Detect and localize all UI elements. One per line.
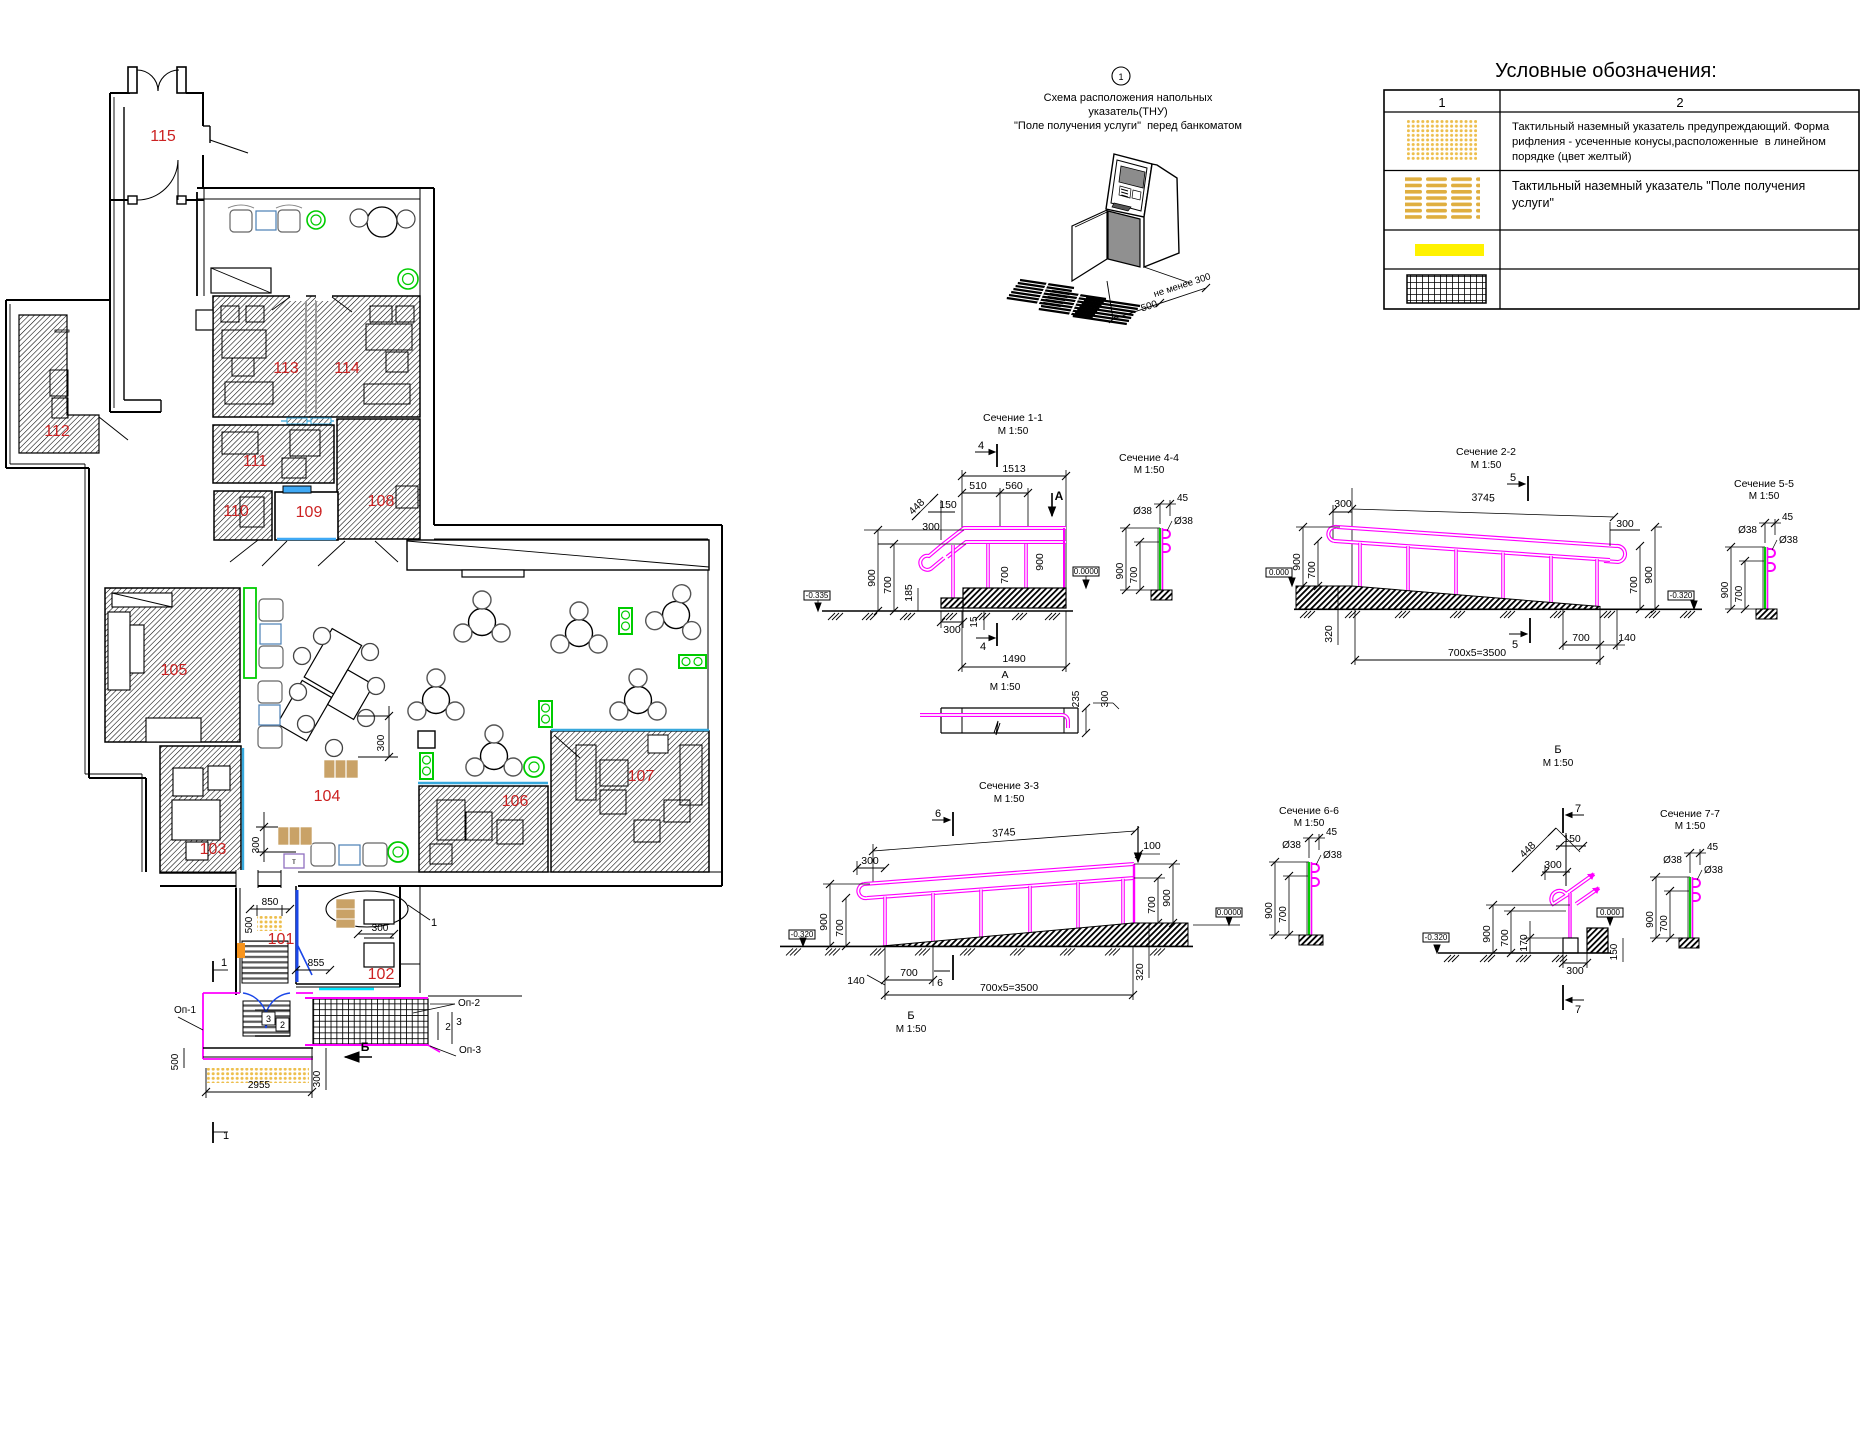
svg-text:Оп-2: Оп-2 <box>458 998 481 1009</box>
svg-text:1490: 1490 <box>1002 653 1026 665</box>
svg-text:300: 300 <box>376 734 387 751</box>
svg-text:700: 700 <box>1659 915 1670 932</box>
svg-text:Ø38: Ø38 <box>1663 855 1682 866</box>
svg-text:Схема расположения напольных: Схема расположения напольных <box>1044 92 1213 104</box>
svg-text:900: 900 <box>1720 581 1731 598</box>
svg-text:560: 560 <box>1005 480 1023 492</box>
svg-text:Сечение 5-5: Сечение 5-5 <box>1734 478 1794 490</box>
svg-text:М 1:50: М 1:50 <box>998 426 1029 437</box>
svg-text:320: 320 <box>1323 625 1335 643</box>
svg-text:2955: 2955 <box>248 1080 271 1091</box>
svg-text:3745: 3745 <box>992 826 1016 840</box>
svg-text:102: 102 <box>368 966 395 983</box>
svg-text:300: 300 <box>922 521 940 533</box>
svg-text:0.000: 0.000 <box>1269 568 1290 577</box>
svg-text:6: 6 <box>937 977 943 989</box>
svg-text:45: 45 <box>1707 842 1719 853</box>
svg-text:М 1:50: М 1:50 <box>896 1024 927 1035</box>
svg-text:900: 900 <box>1645 911 1656 928</box>
svg-text:Сечение 6-6: Сечение 6-6 <box>1279 805 1339 817</box>
svg-text:300: 300 <box>372 923 389 934</box>
svg-text:500: 500 <box>244 916 255 933</box>
svg-text:900: 900 <box>866 569 878 587</box>
svg-text:700: 700 <box>1129 566 1140 583</box>
svg-text:Ø38: Ø38 <box>1282 840 1301 851</box>
svg-text:Сечение 2-2: Сечение 2-2 <box>1456 446 1516 458</box>
svg-text:3: 3 <box>266 1014 271 1024</box>
svg-text:300: 300 <box>1100 690 1111 707</box>
svg-text:М 1:50: М 1:50 <box>1675 821 1706 832</box>
svg-text:320: 320 <box>1134 963 1146 981</box>
svg-text:235: 235 <box>1071 690 1082 707</box>
svg-text:900: 900 <box>1264 902 1275 919</box>
svg-text:300: 300 <box>1616 518 1634 530</box>
svg-text:101: 101 <box>268 931 295 948</box>
svg-text:510: 510 <box>969 480 987 492</box>
svg-text:М 1:50: М 1:50 <box>1294 818 1325 829</box>
svg-text:111: 111 <box>243 453 267 470</box>
svg-text:103: 103 <box>200 841 227 858</box>
svg-text:Ø38: Ø38 <box>1704 865 1723 876</box>
svg-text:М 1:50: М 1:50 <box>990 682 1021 693</box>
svg-text:Б: Б <box>1554 744 1561 756</box>
svg-text:107: 107 <box>628 768 655 785</box>
svg-text:Ø38: Ø38 <box>1133 506 1152 517</box>
svg-text:6: 6 <box>935 808 941 820</box>
svg-text:Оп-1: Оп-1 <box>174 1005 197 1016</box>
svg-text:140: 140 <box>847 975 865 987</box>
svg-text:700: 700 <box>1572 632 1590 644</box>
svg-text:3745: 3745 <box>1471 492 1495 505</box>
svg-text:Сечение 3-3: Сечение 3-3 <box>979 780 1039 792</box>
svg-text:-0.335: -0.335 <box>806 591 829 600</box>
svg-text:114: 114 <box>334 360 360 377</box>
svg-text:А: А <box>1055 489 1064 503</box>
svg-text:100: 100 <box>1143 840 1161 852</box>
svg-text:855: 855 <box>308 958 325 969</box>
svg-text:700: 700 <box>1146 896 1158 914</box>
svg-text:900: 900 <box>1643 566 1655 584</box>
svg-text:700: 700 <box>1278 906 1289 923</box>
svg-text:108: 108 <box>368 493 395 510</box>
svg-text:Сечение 7-7: Сечение 7-7 <box>1660 808 1720 820</box>
svg-text:Тактильный наземный указатель: Тактильный наземный указатель предупрежд… <box>1512 121 1830 133</box>
svg-text:105: 105 <box>161 662 188 679</box>
svg-text:850: 850 <box>262 897 279 908</box>
svg-text:т: т <box>292 857 296 866</box>
svg-text:700: 700 <box>882 576 894 594</box>
svg-text:М 1:50: М 1:50 <box>1471 460 1502 471</box>
svg-text:700: 700 <box>1306 561 1318 579</box>
svg-text:115: 115 <box>150 128 176 145</box>
svg-text:700х5=3500: 700х5=3500 <box>1448 647 1506 659</box>
svg-text:Ø38: Ø38 <box>1738 525 1757 536</box>
svg-text:106: 106 <box>502 793 529 810</box>
svg-text:140: 140 <box>1618 632 1636 644</box>
svg-text:Ø38: Ø38 <box>1323 850 1342 861</box>
svg-text:150: 150 <box>939 499 957 511</box>
svg-text:700: 700 <box>1734 585 1745 602</box>
svg-text:900: 900 <box>1291 553 1303 571</box>
svg-text:7: 7 <box>1575 803 1581 815</box>
svg-text:4: 4 <box>980 641 986 653</box>
svg-text:700: 700 <box>834 919 846 937</box>
svg-text:700: 700 <box>1499 929 1511 947</box>
svg-text:М 1:50: М 1:50 <box>994 794 1025 805</box>
svg-text:185: 185 <box>903 584 915 602</box>
svg-text:112: 112 <box>44 423 70 440</box>
svg-text:150: 150 <box>1609 943 1620 960</box>
svg-text:300: 300 <box>312 1070 323 1087</box>
svg-text:Ø38: Ø38 <box>1779 535 1798 546</box>
svg-text:113: 113 <box>273 360 299 377</box>
svg-text:М 1:50: М 1:50 <box>1543 758 1574 769</box>
svg-text:900: 900 <box>1481 925 1493 943</box>
svg-text:500: 500 <box>170 1053 181 1070</box>
svg-text:300: 300 <box>1544 859 1562 871</box>
svg-text:Б: Б <box>361 1040 370 1054</box>
svg-text:700х5=3500: 700х5=3500 <box>980 982 1038 994</box>
svg-text:Б: Б <box>907 1010 914 1022</box>
svg-text:1: 1 <box>1438 95 1445 110</box>
svg-text:-0.320: -0.320 <box>1670 591 1693 600</box>
svg-text:указатель(ТНУ): указатель(ТНУ) <box>1088 106 1167 118</box>
svg-text:0.000: 0.000 <box>1600 908 1621 917</box>
svg-text:А: А <box>1001 669 1008 681</box>
svg-text:Сечение 4-4: Сечение 4-4 <box>1119 452 1179 464</box>
svg-text:700: 700 <box>900 967 918 979</box>
svg-text:Тактильный наземный указатель: Тактильный наземный указатель "Поле полу… <box>1512 179 1805 193</box>
svg-text:45: 45 <box>1177 493 1189 504</box>
svg-text:300: 300 <box>861 855 879 867</box>
svg-text:2: 2 <box>280 1020 285 1030</box>
svg-text:1: 1 <box>221 957 227 969</box>
svg-text:0.0000: 0.0000 <box>1074 567 1099 576</box>
svg-text:3: 3 <box>456 1017 462 1028</box>
svg-text:5: 5 <box>1510 472 1516 484</box>
svg-text:4: 4 <box>978 440 984 452</box>
svg-text:300: 300 <box>1334 498 1352 510</box>
svg-text:700: 700 <box>999 566 1011 584</box>
svg-text:15: 15 <box>969 616 980 628</box>
svg-text:рифления - усеченные конусы,ра: рифления - усеченные конусы,расположенны… <box>1512 136 1826 148</box>
svg-text:М 1:50: М 1:50 <box>1134 465 1165 476</box>
svg-text:300: 300 <box>251 836 262 853</box>
svg-text:700: 700 <box>1628 576 1640 594</box>
svg-text:0.0000: 0.0000 <box>1217 908 1242 917</box>
svg-text:900: 900 <box>1115 562 1126 579</box>
svg-text:1513: 1513 <box>1002 463 1026 475</box>
svg-text:Ø38: Ø38 <box>1174 516 1193 527</box>
svg-text:М 1:50: М 1:50 <box>1749 491 1780 502</box>
svg-text:110: 110 <box>223 503 249 520</box>
svg-text:1: 1 <box>1118 72 1123 82</box>
svg-text:900: 900 <box>1161 889 1173 907</box>
svg-text:Условные обозначения:: Условные обозначения: <box>1495 60 1717 82</box>
svg-text:порядке (цвет желтый): порядке (цвет желтый) <box>1512 151 1632 163</box>
svg-text:45: 45 <box>1326 827 1338 838</box>
svg-text:104: 104 <box>314 788 341 805</box>
svg-text:Сечение 1-1: Сечение 1-1 <box>983 412 1043 424</box>
svg-text:услуги": услуги" <box>1512 196 1554 210</box>
svg-text:-0.320: -0.320 <box>1425 933 1448 942</box>
svg-text:"Поле получения услуги" перед: "Поле получения услуги" перед банкоматом <box>1014 120 1242 132</box>
svg-text:1: 1 <box>431 917 437 929</box>
svg-text:7: 7 <box>1575 1004 1581 1016</box>
svg-text:1: 1 <box>223 1130 229 1142</box>
svg-text:45: 45 <box>1782 512 1794 523</box>
svg-text:900: 900 <box>1034 553 1046 571</box>
svg-text:Оп-3: Оп-3 <box>459 1045 482 1056</box>
svg-text:300: 300 <box>1566 965 1584 977</box>
svg-text:2: 2 <box>1676 95 1683 110</box>
svg-text:170: 170 <box>1518 934 1530 952</box>
svg-text:2: 2 <box>445 1022 451 1033</box>
svg-text:109: 109 <box>296 504 323 521</box>
svg-text:5: 5 <box>1512 639 1518 651</box>
svg-text:300: 300 <box>943 624 961 636</box>
svg-text:900: 900 <box>818 913 830 931</box>
